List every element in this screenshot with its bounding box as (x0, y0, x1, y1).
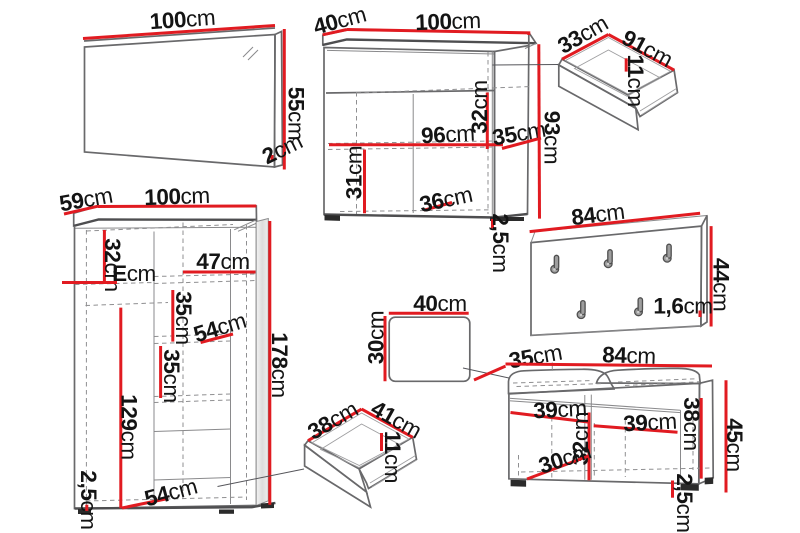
svg-text:39cm: 39cm (623, 409, 678, 437)
svg-text:38cm: 38cm (679, 397, 704, 450)
svg-text:35cm: 35cm (171, 291, 196, 344)
svg-text:100cm: 100cm (149, 5, 216, 35)
svg-text:30cm: 30cm (364, 311, 389, 364)
svg-text:35cm: 35cm (159, 349, 184, 402)
svg-text:100cm: 100cm (144, 183, 210, 210)
svg-text:45cm: 45cm (722, 418, 747, 471)
svg-text:Ecm: Ecm (112, 261, 156, 286)
svg-text:2,5cm: 2,5cm (488, 213, 513, 272)
svg-text:11cm: 11cm (380, 431, 405, 483)
svg-text:40cm: 40cm (413, 291, 466, 316)
svg-text:11cm: 11cm (623, 54, 648, 106)
svg-text:100cm: 100cm (415, 8, 481, 35)
svg-text:31cm: 31cm (342, 146, 367, 199)
svg-text:93cm: 93cm (540, 111, 565, 164)
svg-text:47cm: 47cm (196, 249, 249, 274)
svg-text:84cm: 84cm (602, 342, 656, 369)
svg-text:2,5cm: 2,5cm (672, 473, 697, 532)
svg-text:129cm: 129cm (117, 394, 142, 460)
svg-text:1,6cm: 1,6cm (653, 294, 712, 319)
svg-text:2,5cm: 2,5cm (76, 470, 101, 529)
svg-text:32cm: 32cm (467, 80, 492, 133)
svg-text:178cm: 178cm (267, 332, 292, 398)
